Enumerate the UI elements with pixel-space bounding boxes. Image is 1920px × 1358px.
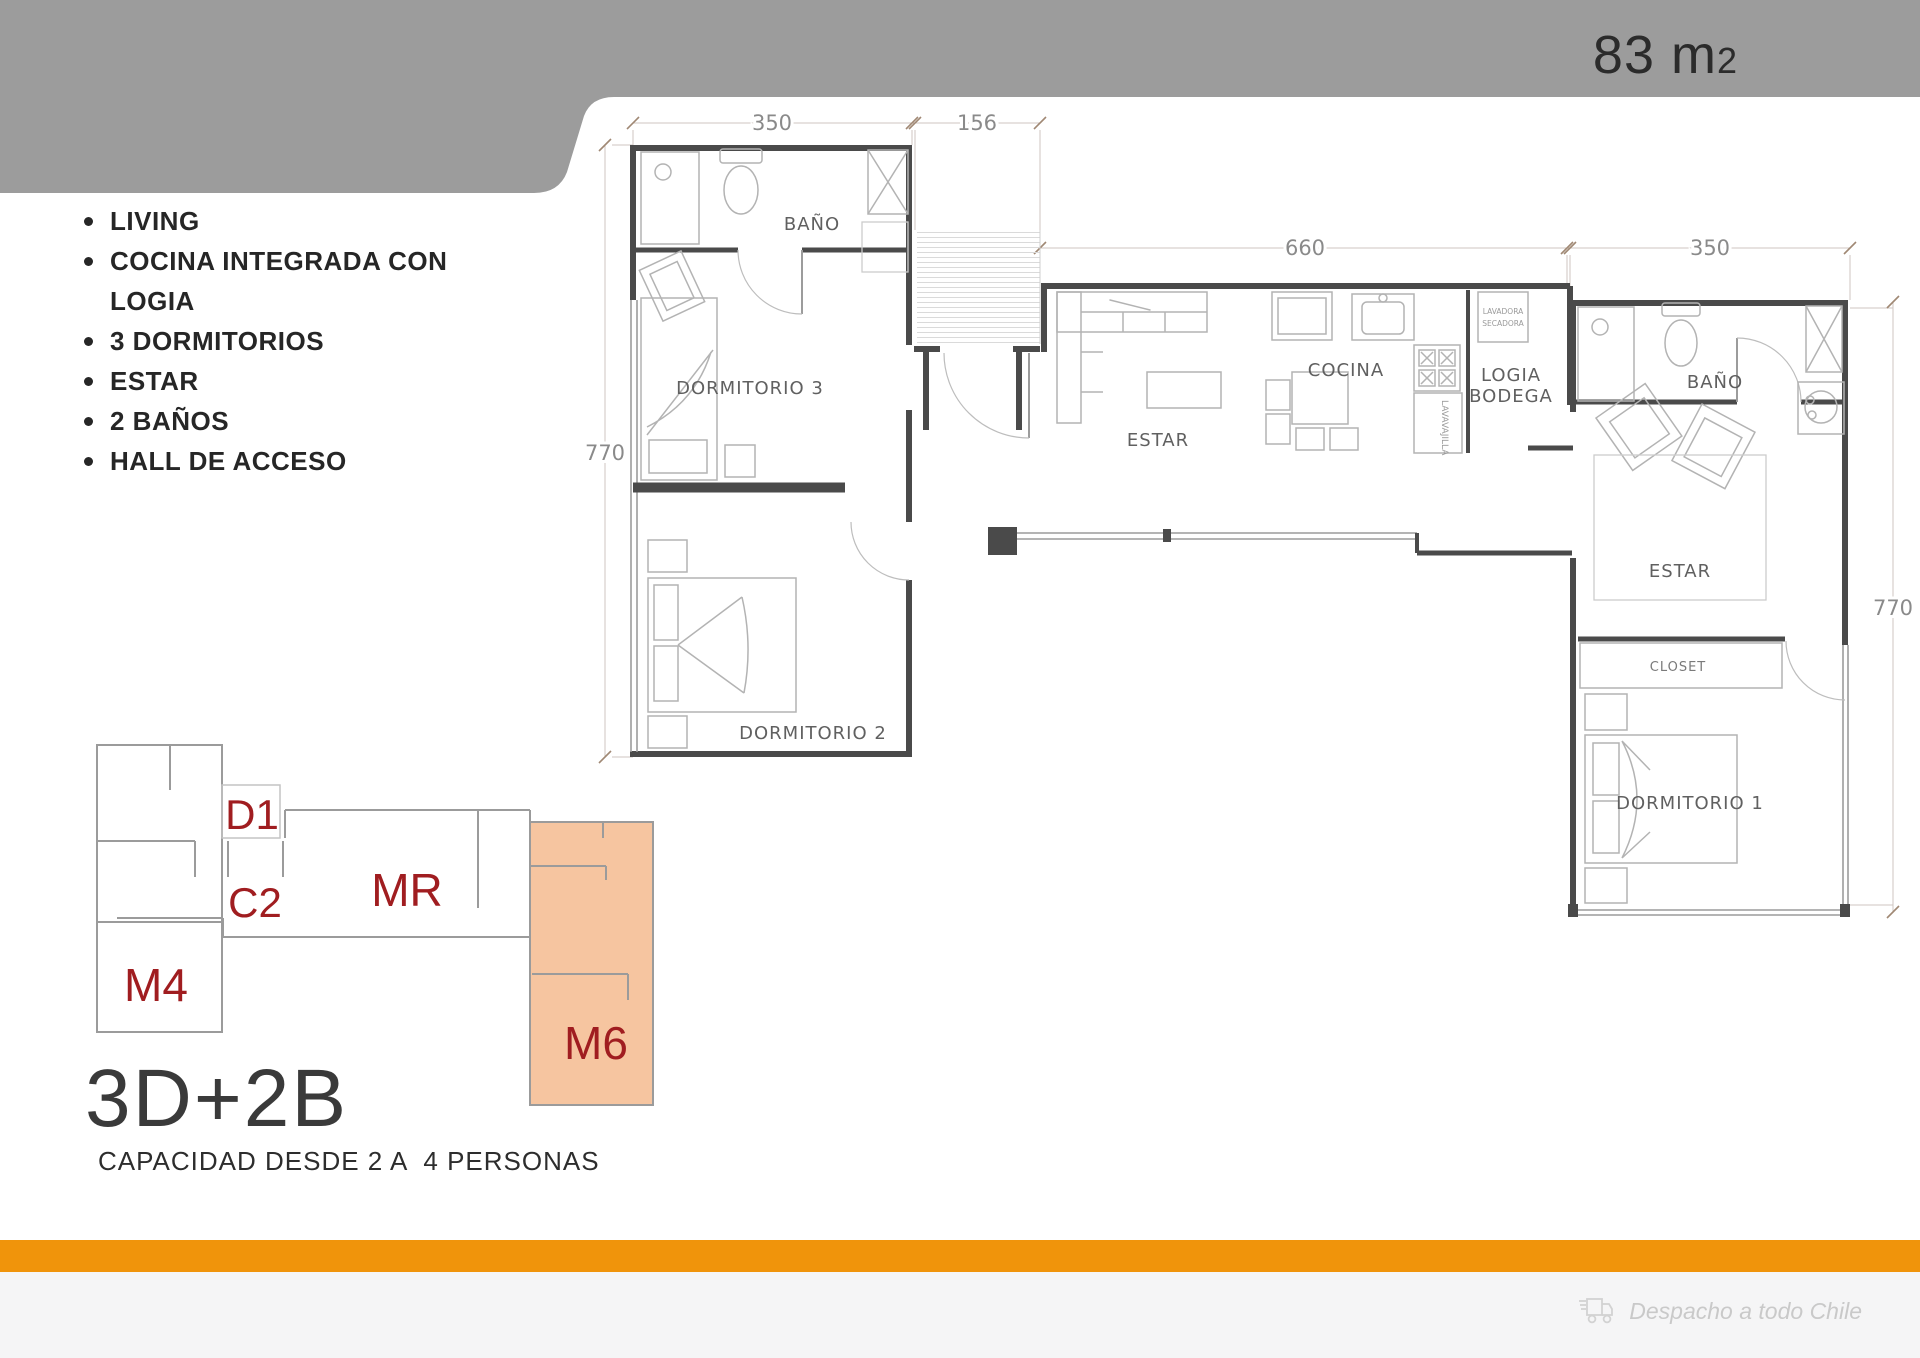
room-label-closet: CLOSET: [1650, 660, 1707, 675]
nightstand: [648, 540, 687, 572]
cabinet: [862, 222, 908, 272]
center-module: LAVAVAJILLA LAVADORA SECADORA ESTAR COCI…: [988, 283, 1573, 555]
room-label-kitchen: COCINA: [1308, 360, 1384, 381]
flyer-page: 83 m2 LIVING COCINA INTEGRADA CON LOGIA …: [0, 0, 1920, 1358]
nightstand: [1585, 868, 1627, 903]
unit-label-m4: M4: [124, 959, 188, 1011]
stair-hatch: [917, 230, 1040, 344]
washer-label-1: LAVADORA: [1483, 307, 1524, 316]
vanity: [1798, 306, 1844, 434]
dim-350-left: 350: [752, 111, 792, 135]
armchair: [1596, 384, 1682, 471]
room-label-bathroom-right: BAÑO: [1687, 371, 1743, 393]
room-label-living-right: ESTAR: [1649, 561, 1711, 582]
toilet-left: [720, 149, 762, 214]
unit-label-m6: M6: [564, 1017, 628, 1069]
duct-shaft: [868, 150, 908, 214]
left-module: BAÑO DORMITORIO 3 DORMITORIO 2: [630, 145, 912, 754]
right-module: BAÑO ESTAR CLOSET DORMITORIO 1: [1568, 300, 1850, 917]
washer-dryer: [1478, 292, 1528, 342]
washer-label-2: SECADORA: [1482, 319, 1524, 328]
desk-chair: [639, 251, 704, 321]
unit-label-mr: MR: [371, 864, 443, 916]
bed-bedroom2: [648, 578, 796, 712]
toilet-right: [1662, 303, 1700, 366]
room-label-logia-1: LOGIA: [1481, 365, 1541, 386]
room-label-bedroom3: DORMITORIO 3: [676, 378, 824, 399]
capacity-note: CAPACIDAD DESDE 2 A 4 PERSONAS: [98, 1146, 600, 1177]
dishwasher-label: LAVAVAJILLA: [1439, 400, 1449, 456]
dim-770-left: 770: [585, 441, 625, 465]
shipping-note: Despacho a todo Chile: [1629, 1298, 1862, 1325]
nightstand: [725, 445, 755, 477]
dim-350-right: 350: [1690, 236, 1730, 260]
room-label-bedroom1: DORMITORIO 1: [1616, 793, 1764, 814]
nightstand: [1585, 694, 1627, 730]
unit-label-d1: D1: [225, 791, 279, 838]
room-label-logia-2: BODEGA: [1469, 386, 1553, 407]
stove: [1414, 345, 1460, 391]
coffee-table: [1147, 372, 1221, 408]
wall-post: [1840, 904, 1850, 917]
room-label-bathroom-left: BAÑO: [784, 213, 840, 235]
wall-post: [988, 527, 1017, 555]
key-plan: D1 C2 MR M4 M6: [97, 745, 653, 1105]
shipping-badge: Despacho a todo Chile: [1578, 1296, 1862, 1326]
dim-156-hall: 156: [957, 111, 997, 135]
dim-770-right: 770: [1873, 596, 1913, 620]
typology-title: 3D+2B: [85, 1058, 348, 1140]
accent-bar: [0, 1240, 1920, 1272]
shower-right: [1578, 307, 1634, 401]
dishwasher: [1414, 393, 1462, 453]
kitchen-counter: [1272, 292, 1414, 340]
entry-hall: [914, 230, 1040, 438]
dim-660-center: 660: [1285, 236, 1325, 260]
nightstand: [648, 716, 687, 748]
shower-left: [641, 152, 699, 244]
room-label-bedroom2: DORMITORIO 2: [739, 723, 887, 744]
window-mullion: [1163, 529, 1171, 542]
dining-set: [1266, 372, 1358, 450]
delivery-truck-icon: [1578, 1296, 1616, 1326]
wall-post: [1568, 904, 1578, 917]
unit-label-c2: C2: [228, 879, 282, 926]
room-label-living-center: ESTAR: [1127, 430, 1189, 451]
sofa: [1057, 292, 1207, 423]
armchair: [1672, 404, 1755, 489]
